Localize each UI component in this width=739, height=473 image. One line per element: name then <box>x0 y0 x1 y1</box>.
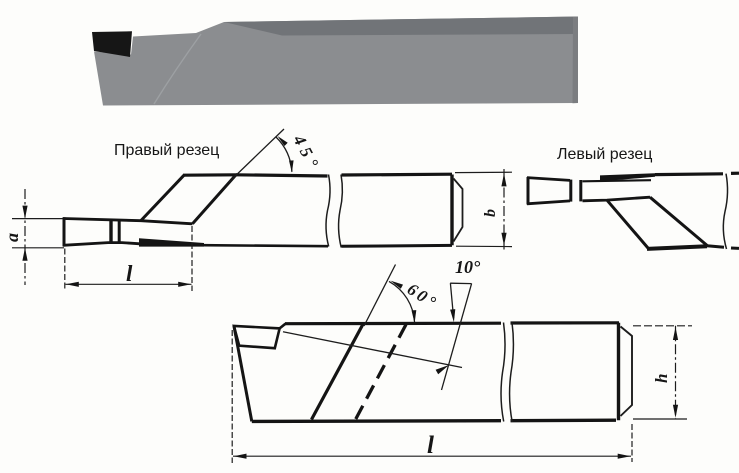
svg-text:45°: 45° <box>289 131 324 175</box>
svg-text:b: b <box>482 209 499 217</box>
svg-text:Правый резец: Правый резец <box>114 142 219 159</box>
svg-text:10°: 10° <box>455 257 481 277</box>
svg-text:l: l <box>126 261 133 286</box>
svg-text:l: l <box>427 432 434 459</box>
svg-text:h: h <box>652 374 671 383</box>
svg-text:60°: 60° <box>404 279 442 313</box>
svg-text:a: a <box>2 233 22 242</box>
svg-text:Левый резец: Левый резец <box>557 146 652 163</box>
